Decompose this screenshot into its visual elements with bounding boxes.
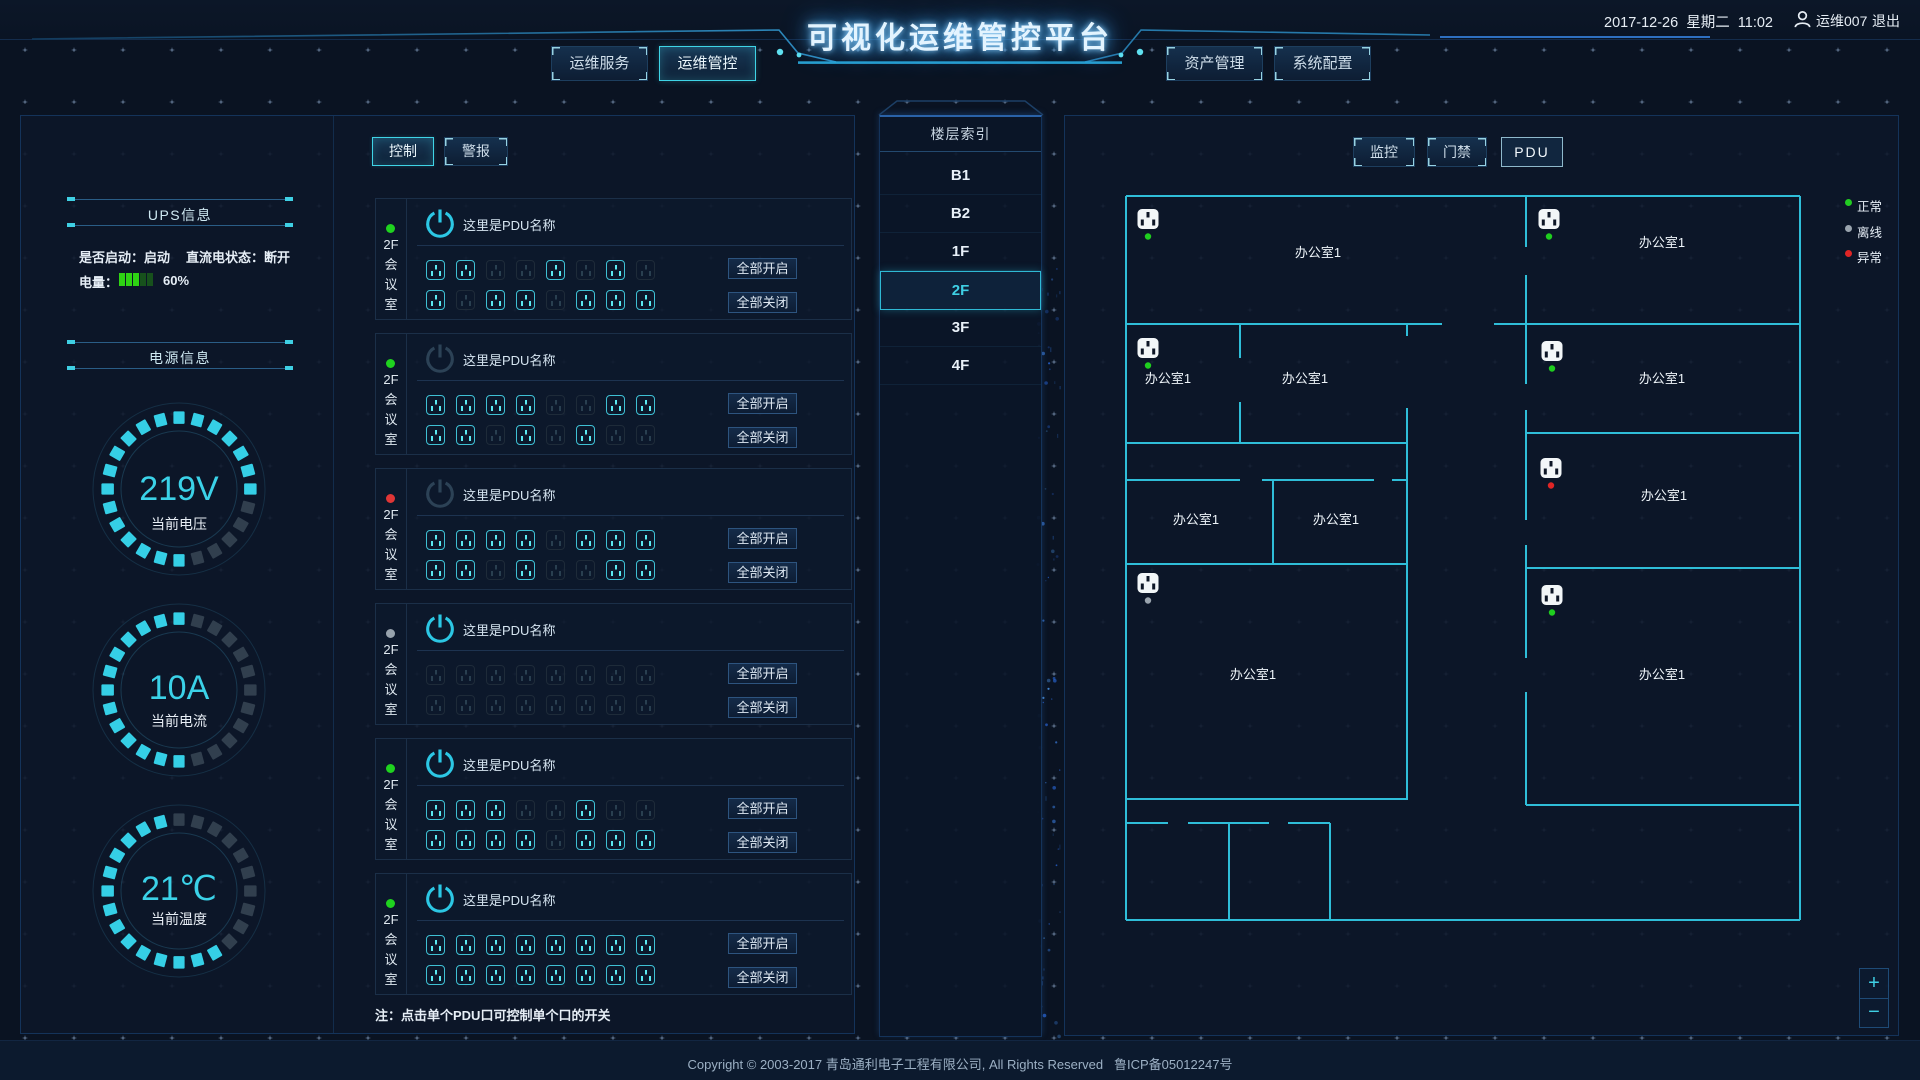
svg-text:办公室1: 办公室1 <box>1282 371 1328 386</box>
svg-text:办公室1: 办公室1 <box>1313 512 1359 527</box>
svg-text:办公室1: 办公室1 <box>1641 488 1687 503</box>
svg-text:办公室1: 办公室1 <box>1639 371 1685 386</box>
svg-text:办公室1: 办公室1 <box>1639 235 1685 250</box>
svg-text:办公室1: 办公室1 <box>1639 667 1685 682</box>
svg-text:办公室1: 办公室1 <box>1145 371 1191 386</box>
svg-text:办公室1: 办公室1 <box>1230 667 1276 682</box>
svg-text:办公室1: 办公室1 <box>1173 512 1219 527</box>
svg-text:办公室1: 办公室1 <box>1295 245 1341 260</box>
